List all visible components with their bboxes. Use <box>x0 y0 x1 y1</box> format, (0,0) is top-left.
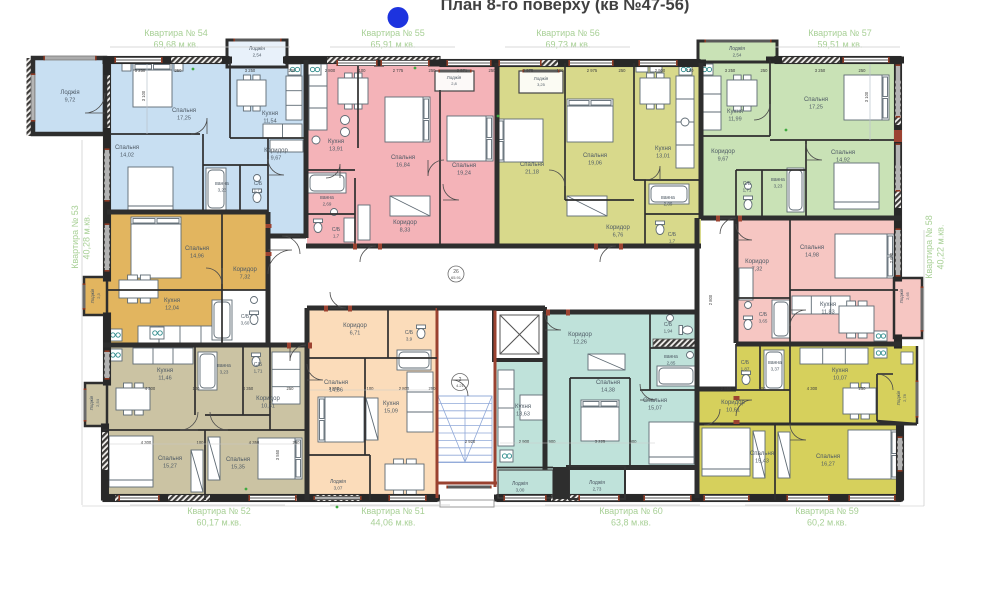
svg-text:11,83: 11,83 <box>821 310 834 316</box>
svg-text:Коридор: Коридор <box>393 220 417 226</box>
svg-text:13,63: 13,63 <box>516 412 530 418</box>
svg-text:2 900: 2 900 <box>655 68 666 73</box>
svg-text:3,07: 3,07 <box>334 486 343 491</box>
svg-text:10,61: 10,61 <box>261 404 275 410</box>
svg-text:Квартира № 52: Квартира № 52 <box>187 506 251 516</box>
svg-text:2,65: 2,65 <box>905 291 910 300</box>
svg-text:3,25: 3,25 <box>537 82 546 87</box>
svg-text:ванна: ванна <box>771 177 785 183</box>
svg-text:1,94: 1,94 <box>664 329 673 334</box>
svg-text:11,54: 11,54 <box>263 119 276 125</box>
svg-text:Спальня: Спальня <box>226 457 250 463</box>
svg-text:21,18: 21,18 <box>525 170 539 176</box>
svg-text:Спальня: Спальня <box>583 153 607 159</box>
svg-text:Кухня: Кухня <box>164 298 180 304</box>
svg-text:Спальня: Спальня <box>520 162 544 168</box>
svg-text:Коридор: Коридор <box>256 396 280 402</box>
svg-text:3,37: 3,37 <box>771 367 780 372</box>
svg-text:14,02: 14,02 <box>120 153 134 159</box>
svg-text:2 920: 2 920 <box>465 439 476 444</box>
svg-text:15,07: 15,07 <box>648 406 662 412</box>
svg-text:ванна: ванна <box>215 181 229 187</box>
svg-text:ванна: ванна <box>320 195 334 201</box>
svg-text:Спальня: Спальня <box>596 380 620 386</box>
svg-text:Спальня: Спальня <box>172 108 196 114</box>
svg-text:13,01: 13,01 <box>656 154 670 160</box>
svg-text:С/Б: С/Б <box>405 330 414 336</box>
svg-text:Квартира № 60: Квартира № 60 <box>599 506 663 516</box>
svg-text:Коридор: Коридор <box>745 259 769 265</box>
svg-text:Кухня: Кухня <box>262 111 278 117</box>
svg-text:2,78: 2,78 <box>902 393 907 402</box>
svg-text:С/Б: С/Б <box>254 362 263 368</box>
svg-text:Квартира № 53: Квартира № 53 <box>70 205 80 269</box>
svg-text:100: 100 <box>557 68 565 73</box>
svg-text:13,91: 13,91 <box>329 147 343 153</box>
svg-text:Лоджія: Лоджія <box>534 76 549 81</box>
svg-text:19,24: 19,24 <box>457 171 471 177</box>
svg-text:17,25: 17,25 <box>809 105 823 111</box>
svg-text:250: 250 <box>859 68 867 73</box>
svg-text:С/Б: С/Б <box>664 322 673 328</box>
svg-text:Коридор: Коридор <box>343 323 367 329</box>
svg-text:2,54: 2,54 <box>253 53 262 58</box>
svg-text:65,91 м.кв.: 65,91 м.кв. <box>371 40 416 50</box>
svg-text:11,46: 11,46 <box>158 376 171 382</box>
svg-text:Лоджія: Лоджія <box>447 75 462 80</box>
svg-text:План 8-го поверху (кв №47-56): План 8-го поверху (кв №47-56) <box>441 0 690 14</box>
svg-text:Кухня: Кухня <box>328 139 344 145</box>
svg-text:Спальня: Спальня <box>115 145 139 151</box>
svg-text:60,2 м.кв.: 60,2 м.кв. <box>807 518 847 528</box>
svg-text:Спальня: Спальня <box>391 155 415 161</box>
svg-text:2 975: 2 975 <box>587 68 598 73</box>
svg-text:С/Б: С/Б <box>668 232 677 238</box>
svg-text:2,8: 2,8 <box>451 81 457 86</box>
svg-text:2 800: 2 800 <box>325 68 336 73</box>
svg-text:100: 100 <box>193 386 201 391</box>
svg-text:Коридор: Коридор <box>711 149 735 155</box>
svg-text:2,89: 2,89 <box>664 202 673 207</box>
svg-text:Кухня: Кухня <box>832 368 848 374</box>
svg-text:2,85: 2,85 <box>667 361 676 366</box>
svg-text:9,67: 9,67 <box>271 156 282 162</box>
svg-text:Коридор: Коридор <box>233 267 257 273</box>
svg-text:Квартира № 55: Квартира № 55 <box>361 28 425 38</box>
svg-text:2,54: 2,54 <box>733 53 742 58</box>
svg-text:1,71: 1,71 <box>254 188 263 193</box>
svg-text:Коридор: Коридор <box>721 400 745 406</box>
svg-text:Лоджія: Лоджія <box>330 479 346 485</box>
svg-text:2 650: 2 650 <box>889 252 894 263</box>
svg-text:3,60: 3,60 <box>241 321 250 326</box>
svg-text:Коридор: Коридор <box>606 225 630 231</box>
svg-text:С/Б: С/Б <box>254 181 263 187</box>
svg-text:Коридор: Коридор <box>568 332 592 338</box>
svg-text:Квартира № 51: Квартира № 51 <box>361 506 425 516</box>
svg-text:11,99: 11,99 <box>728 117 741 123</box>
svg-text:3 250: 3 250 <box>245 68 256 73</box>
svg-text:Спальня: Спальня <box>158 456 182 462</box>
svg-text:14,92: 14,92 <box>836 158 850 164</box>
svg-text:9,72: 9,72 <box>65 98 76 104</box>
svg-text:2,3: 2,3 <box>96 292 101 298</box>
svg-text:250: 250 <box>175 68 183 73</box>
svg-text:250: 250 <box>429 68 437 73</box>
svg-text:3,23: 3,23 <box>774 184 783 189</box>
svg-text:7,32: 7,32 <box>240 275 251 281</box>
svg-text:С/Б: С/Б <box>741 360 750 366</box>
svg-text:Квартира № 56: Квартира № 56 <box>536 28 600 38</box>
svg-text:19,06: 19,06 <box>588 161 602 167</box>
svg-text:Лоджія: Лоджія <box>512 481 528 487</box>
svg-text:1,87: 1,87 <box>741 367 750 372</box>
svg-text:16,27: 16,27 <box>821 462 835 468</box>
svg-text:10,61: 10,61 <box>726 408 740 414</box>
svg-text:3,00: 3,00 <box>516 488 525 493</box>
svg-text:ванна: ванна <box>217 363 231 369</box>
svg-text:Спальня: Спальня <box>800 245 824 251</box>
svg-text:Спальня: Спальня <box>324 380 348 386</box>
svg-text:3 250: 3 250 <box>725 68 736 73</box>
svg-text:4.21: 4.21 <box>456 383 465 388</box>
svg-text:Лоджія: Лоджія <box>589 480 605 486</box>
svg-text:2 775: 2 775 <box>393 68 404 73</box>
svg-text:9,67: 9,67 <box>718 157 729 163</box>
svg-text:12,26: 12,26 <box>573 340 587 346</box>
svg-text:Лоджія: Лоджія <box>90 288 95 303</box>
svg-text:Квартира № 54: Квартира № 54 <box>144 28 208 38</box>
svg-text:Коридор: Коридор <box>264 148 288 154</box>
svg-text:2,69: 2,69 <box>323 202 332 207</box>
svg-text:Лоджія: Лоджія <box>899 288 904 303</box>
svg-text:С/Б: С/Б <box>241 314 250 320</box>
svg-text:1,7: 1,7 <box>669 239 676 244</box>
svg-text:69,73 м.кв.: 69,73 м.кв. <box>546 40 591 50</box>
svg-text:Спальня: Спальня <box>831 150 855 156</box>
svg-text:7,32: 7,32 <box>752 267 763 273</box>
svg-text:14,86: 14,86 <box>329 388 343 394</box>
svg-text:15,43: 15,43 <box>755 459 769 465</box>
svg-text:Кухня: Кухня <box>727 109 743 115</box>
svg-text:250: 250 <box>761 68 769 73</box>
svg-text:65.91: 65.91 <box>451 275 462 280</box>
svg-text:63,8 м.кв.: 63,8 м.кв. <box>611 518 651 528</box>
svg-text:3,65: 3,65 <box>759 319 768 324</box>
svg-text:250: 250 <box>287 386 295 391</box>
svg-text:14,96: 14,96 <box>190 254 204 260</box>
svg-text:8,33: 8,33 <box>400 228 411 234</box>
svg-text:Лоджія: Лоджія <box>729 46 745 52</box>
svg-text:3,23: 3,23 <box>220 370 229 375</box>
svg-text:250: 250 <box>489 68 497 73</box>
svg-text:40,28 м.кв.: 40,28 м.кв. <box>82 215 92 260</box>
svg-text:4 300: 4 300 <box>145 386 156 391</box>
svg-text:Лоджія: Лоджія <box>896 390 901 405</box>
svg-text:Кухня: Кухня <box>515 404 531 410</box>
svg-text:250: 250 <box>289 68 297 73</box>
svg-text:69,68 м.кв.: 69,68 м.кв. <box>154 40 199 50</box>
svg-text:Кухня: Кухня <box>820 302 836 308</box>
svg-text:250: 250 <box>859 386 867 391</box>
svg-text:Спальня: Спальня <box>816 454 840 460</box>
svg-text:44,06 м.кв.: 44,06 м.кв. <box>371 518 416 528</box>
svg-text:59,51 м.кв.: 59,51 м.кв. <box>818 40 863 50</box>
svg-text:60,17 м.кв.: 60,17 м.кв. <box>197 518 242 528</box>
svg-text:С/Б: С/Б <box>332 227 341 233</box>
svg-text:100: 100 <box>759 386 767 391</box>
svg-text:Кухня: Кухня <box>157 368 173 374</box>
svg-text:2 850: 2 850 <box>721 386 732 391</box>
svg-text:10,07: 10,07 <box>833 376 847 382</box>
svg-text:Кухня: Кухня <box>655 146 671 152</box>
svg-text:4 300: 4 300 <box>807 386 818 391</box>
svg-text:Спальня: Спальня <box>643 398 667 404</box>
svg-text:Квартира № 59: Квартира № 59 <box>795 506 859 516</box>
svg-text:5 250: 5 250 <box>135 68 146 73</box>
svg-text:Кухня: Кухня <box>383 401 399 407</box>
svg-text:2 571: 2 571 <box>457 68 468 73</box>
svg-text:1,7: 1,7 <box>333 234 340 239</box>
svg-text:Лоджія: Лоджія <box>60 90 79 96</box>
svg-text:2 800: 2 800 <box>708 294 713 305</box>
svg-text:2,73: 2,73 <box>593 487 602 492</box>
svg-text:ванна: ванна <box>768 360 782 366</box>
svg-text:3 250: 3 250 <box>815 68 826 73</box>
svg-text:2,54: 2,54 <box>95 398 100 407</box>
svg-text:3,23: 3,23 <box>218 188 227 193</box>
svg-text:4 350: 4 350 <box>243 386 254 391</box>
svg-text:С/Б: С/Б <box>759 312 768 318</box>
svg-text:100: 100 <box>359 68 367 73</box>
svg-text:15,09: 15,09 <box>384 409 398 415</box>
svg-text:12,04: 12,04 <box>165 306 179 312</box>
svg-text:6,76: 6,76 <box>613 233 624 239</box>
svg-text:Лоджія: Лоджія <box>89 395 94 410</box>
svg-text:3 100: 3 100 <box>141 90 146 101</box>
svg-text:Квартира № 58: Квартира № 58 <box>924 215 934 279</box>
svg-text:ванна: ванна <box>664 354 678 360</box>
svg-text:14,98: 14,98 <box>805 253 819 259</box>
svg-text:2 975: 2 975 <box>523 68 534 73</box>
svg-text:С/Б: С/Б <box>743 181 752 187</box>
svg-text:14,38: 14,38 <box>601 388 615 394</box>
svg-text:1,71: 1,71 <box>743 188 752 193</box>
svg-text:16,84: 16,84 <box>396 163 410 169</box>
svg-text:ванна: ванна <box>661 195 675 201</box>
svg-text:6,71: 6,71 <box>350 331 361 337</box>
svg-text:Спальня: Спальня <box>185 246 209 252</box>
svg-text:17,25: 17,25 <box>177 116 191 122</box>
svg-text:250: 250 <box>619 68 627 73</box>
svg-text:3,9: 3,9 <box>406 337 413 342</box>
svg-text:15,27: 15,27 <box>163 464 177 470</box>
svg-text:Квартира № 57: Квартира № 57 <box>808 28 872 38</box>
svg-text:Спальня: Спальня <box>750 451 774 457</box>
svg-text:Спальня: Спальня <box>804 97 828 103</box>
svg-text:3 100: 3 100 <box>864 91 869 102</box>
svg-text:Спальня: Спальня <box>452 163 476 169</box>
svg-text:3 550: 3 550 <box>275 449 280 460</box>
svg-text:100: 100 <box>687 68 695 73</box>
svg-text:40,22 м.кв.: 40,22 м.кв. <box>936 225 946 270</box>
svg-text:1,71: 1,71 <box>254 369 263 374</box>
svg-text:15,35: 15,35 <box>231 465 245 471</box>
